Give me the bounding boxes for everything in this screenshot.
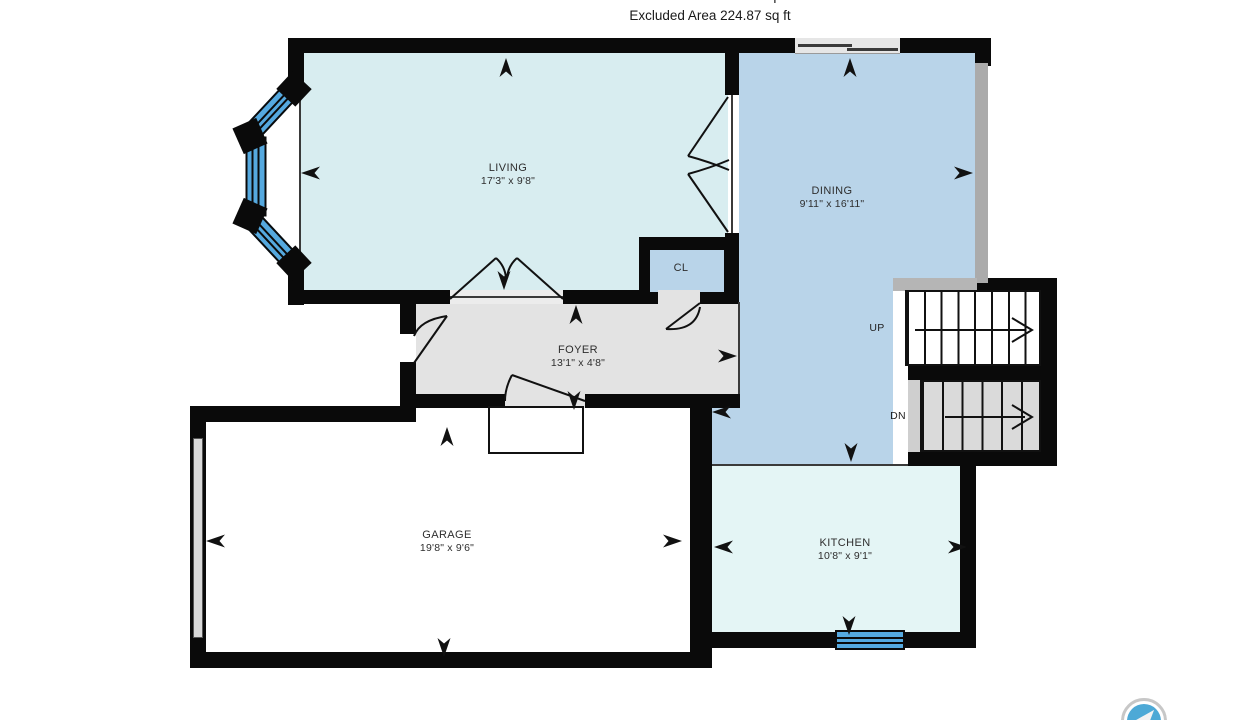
- wall-segment: [698, 632, 837, 648]
- closet-label: CL: [651, 262, 711, 274]
- deck-strip: [975, 63, 988, 283]
- bay-interior-line: [299, 86, 301, 268]
- dining-room-floor: [739, 52, 975, 283]
- entry-step: [488, 406, 584, 454]
- stairs-up-treads: [905, 290, 1041, 366]
- threshold-line: [738, 302, 740, 394]
- wall-segment: [690, 394, 712, 668]
- dining-room-floor-lower: [739, 283, 893, 465]
- stairs-down-label: DN: [878, 410, 918, 422]
- interior-area-text: Interior Area 1091.74 sq ft: [440, 0, 980, 3]
- floor-plan: Interior Area 1091.74 sq ft Excluded Are…: [0, 0, 1240, 720]
- foyer-label: FOYER 13'1" x 4'8": [478, 344, 678, 369]
- threshold-line: [712, 464, 908, 466]
- dimension-arrow-icon: [441, 427, 454, 446]
- wall-segment: [960, 452, 976, 648]
- excluded-area-text: Excluded Area 224.87 sq ft: [440, 8, 980, 23]
- dining-room-label: DINING 9'11" x 16'11": [732, 185, 932, 210]
- wall-segment: [563, 290, 639, 304]
- hall-floor: [712, 406, 739, 465]
- dimension-arrow-icon: [663, 535, 682, 548]
- wall-segment: [898, 38, 977, 53]
- room-dims: 19'8" x 9'6": [347, 542, 547, 554]
- garage-door-strip: [193, 438, 203, 638]
- kitchen-label: KITCHEN 10'8" x 9'1": [745, 537, 945, 562]
- sliding-door-panel: [798, 44, 852, 47]
- room-name: FOYER: [478, 344, 678, 356]
- threshold-line: [731, 95, 733, 233]
- wall-segment: [288, 38, 738, 53]
- room-dims: 9'11" x 16'11": [732, 198, 932, 210]
- compass-logo-icon: [1121, 698, 1167, 720]
- wall-segment: [738, 38, 798, 53]
- room-name: LIVING: [408, 162, 608, 174]
- wall-segment: [908, 452, 1043, 466]
- living-room-label: LIVING 17'3" x 9'8": [408, 162, 608, 187]
- stairs-down-treads: [920, 380, 1041, 452]
- wall-segment: [725, 53, 739, 95]
- wall-segment: [725, 233, 739, 304]
- room-dims: 17'3" x 9'8": [408, 175, 608, 187]
- room-dims: 10'8" x 9'1": [745, 550, 945, 562]
- room-dims: 13'1" x 4'8": [478, 357, 678, 369]
- closet-door-opening: [658, 290, 700, 304]
- stairs-up-label: UP: [857, 322, 897, 334]
- wall-segment: [288, 290, 450, 304]
- wall-segment: [975, 38, 991, 66]
- kitchen-window-icon: [835, 630, 905, 650]
- sliding-door: [795, 38, 900, 54]
- wall-segment: [1041, 278, 1057, 466]
- room-name: CL: [651, 262, 711, 274]
- wall-segment: [400, 302, 416, 334]
- wall-segment: [585, 394, 740, 408]
- room-name: GARAGE: [347, 529, 547, 541]
- room-name: DINING: [732, 185, 932, 197]
- garage-label: GARAGE 19'8" x 9'6": [347, 529, 547, 554]
- dimension-arrow-icon: [206, 535, 225, 548]
- wall-segment: [190, 652, 710, 668]
- threshold-line: [450, 296, 563, 298]
- room-name: KITCHEN: [745, 537, 945, 549]
- wall-segment: [190, 406, 416, 422]
- sliding-door-panel: [847, 48, 898, 51]
- wall-segment: [908, 366, 1043, 380]
